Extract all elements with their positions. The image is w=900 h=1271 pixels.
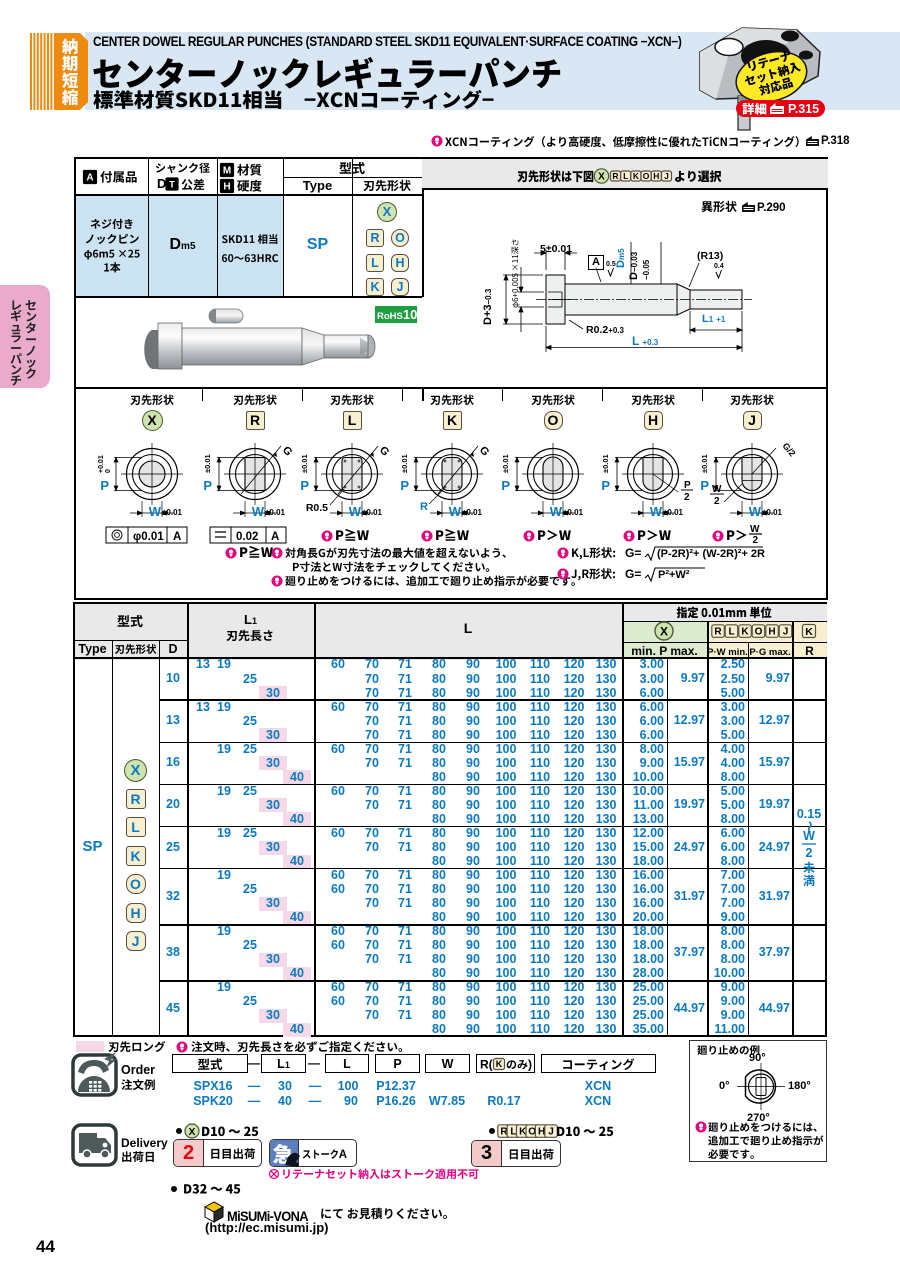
svg-text:L: L bbox=[510, 1127, 516, 1138]
svg-text:J: J bbox=[548, 1127, 554, 1138]
svg-text:H: H bbox=[538, 1127, 545, 1138]
svg-text:R: R bbox=[500, 1127, 508, 1138]
svg-text:O: O bbox=[528, 1127, 536, 1138]
svg-text:K: K bbox=[519, 1127, 527, 1138]
svg-text:X: X bbox=[189, 1127, 196, 1138]
